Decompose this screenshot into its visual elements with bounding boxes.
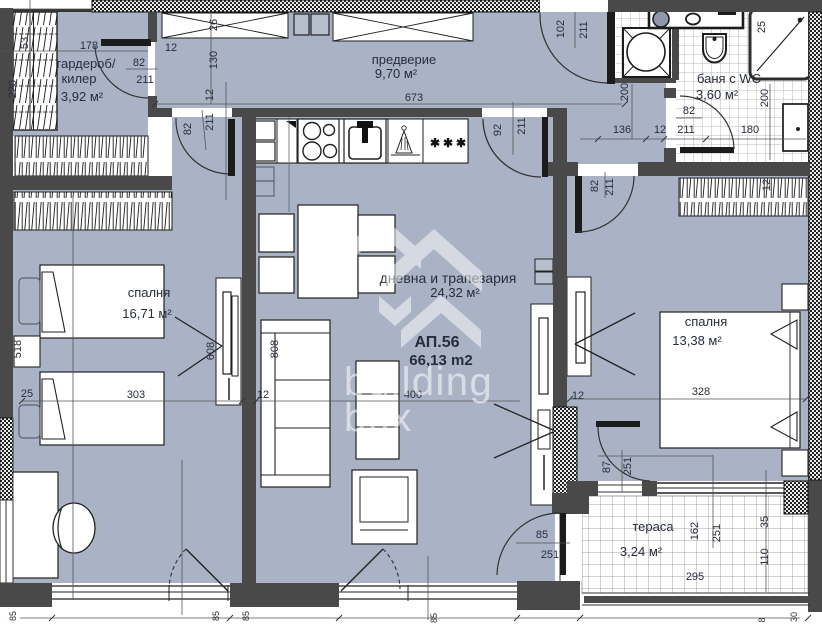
svg-text:251: 251 [541, 549, 559, 561]
svg-text:✱: ✱ [456, 136, 466, 150]
svg-text:24,32 м²: 24,32 м² [430, 285, 480, 300]
svg-text:12: 12 [165, 42, 177, 54]
svg-text:608: 608 [205, 342, 217, 360]
svg-text:82: 82 [683, 105, 695, 117]
svg-text:12: 12 [257, 389, 269, 401]
svg-text:тераса: тераса [632, 519, 674, 534]
svg-text:85: 85 [429, 613, 439, 623]
svg-text:✱: ✱ [443, 136, 453, 150]
svg-text:295: 295 [686, 571, 704, 583]
svg-text:200: 200 [759, 89, 771, 107]
svg-text:35: 35 [759, 516, 771, 528]
svg-text:102: 102 [555, 20, 567, 38]
svg-text:85: 85 [211, 611, 221, 621]
svg-text:13,38 м²: 13,38 м² [672, 333, 722, 348]
svg-text:30: 30 [789, 612, 799, 622]
svg-text:87: 87 [601, 461, 613, 473]
svg-text:спалня: спалня [128, 285, 171, 300]
svg-text:9,70 м²: 9,70 м² [375, 66, 418, 81]
svg-text:211: 211 [677, 124, 695, 136]
svg-text:211: 211 [578, 21, 590, 39]
svg-text:92: 92 [492, 124, 504, 136]
svg-text:баня с WC: баня с WC [697, 71, 761, 86]
svg-text:211: 211 [604, 178, 616, 196]
svg-text:8: 8 [757, 617, 767, 622]
svg-text:25: 25 [21, 388, 33, 400]
svg-text:328: 328 [692, 386, 710, 398]
svg-text:162: 162 [689, 522, 701, 540]
svg-text:303: 303 [127, 389, 145, 401]
svg-text:136: 136 [613, 124, 631, 136]
svg-text:211: 211 [204, 113, 216, 131]
svg-text:211: 211 [136, 74, 154, 86]
svg-text:25: 25 [756, 21, 768, 33]
svg-text:box: box [344, 396, 413, 440]
svg-text:12: 12 [572, 390, 584, 402]
svg-text:82: 82 [589, 180, 601, 192]
svg-text:220: 220 [7, 80, 19, 98]
svg-text:3,92 м²: 3,92 м² [61, 89, 104, 104]
svg-text:12: 12 [654, 124, 666, 136]
svg-text:808: 808 [269, 340, 281, 358]
svg-text:12: 12 [204, 89, 216, 101]
svg-text:82: 82 [133, 57, 145, 69]
svg-text:3,60 м²: 3,60 м² [696, 87, 739, 102]
svg-text:предверие: предверие [372, 52, 437, 67]
svg-text:251: 251 [711, 524, 723, 542]
svg-text:673: 673 [405, 92, 423, 104]
svg-text:16,71 м²: 16,71 м² [122, 306, 172, 321]
svg-text:82: 82 [182, 123, 194, 135]
svg-text:85: 85 [8, 611, 18, 621]
svg-text:3,24 м²: 3,24 м² [620, 544, 663, 559]
svg-text:12: 12 [761, 179, 773, 191]
svg-text:200: 200 [619, 83, 631, 101]
svg-text:130: 130 [208, 51, 220, 69]
svg-text:53: 53 [19, 37, 31, 49]
svg-text:251: 251 [622, 457, 634, 475]
svg-text:✱: ✱ [430, 136, 440, 150]
svg-text:110: 110 [759, 548, 771, 566]
svg-text:180: 180 [741, 124, 759, 136]
svg-text:211: 211 [516, 117, 528, 135]
svg-text:85: 85 [536, 529, 548, 541]
svg-text:178: 178 [80, 40, 98, 52]
svg-text:гардероб/: гардероб/ [57, 56, 116, 71]
svg-text:килер: килер [62, 71, 97, 86]
svg-text:85: 85 [241, 611, 251, 621]
svg-text:спалня: спалня [685, 314, 728, 329]
svg-text:518: 518 [12, 340, 24, 358]
svg-text:АП.56: АП.56 [414, 334, 459, 351]
svg-text:26: 26 [208, 19, 220, 31]
